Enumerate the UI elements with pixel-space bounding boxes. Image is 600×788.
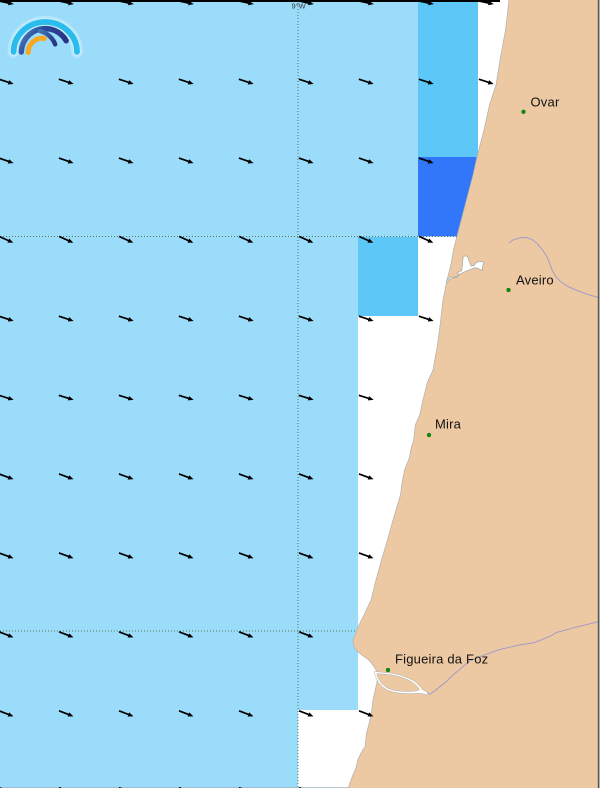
svg-text:Ovar: Ovar [531, 95, 560, 110]
svg-text:9°W: 9°W [292, 2, 307, 11]
svg-text:Mira: Mira [435, 417, 462, 432]
svg-text:Figueira da Foz: Figueira da Foz [395, 652, 488, 667]
svg-text:Aveiro: Aveiro [516, 273, 554, 288]
